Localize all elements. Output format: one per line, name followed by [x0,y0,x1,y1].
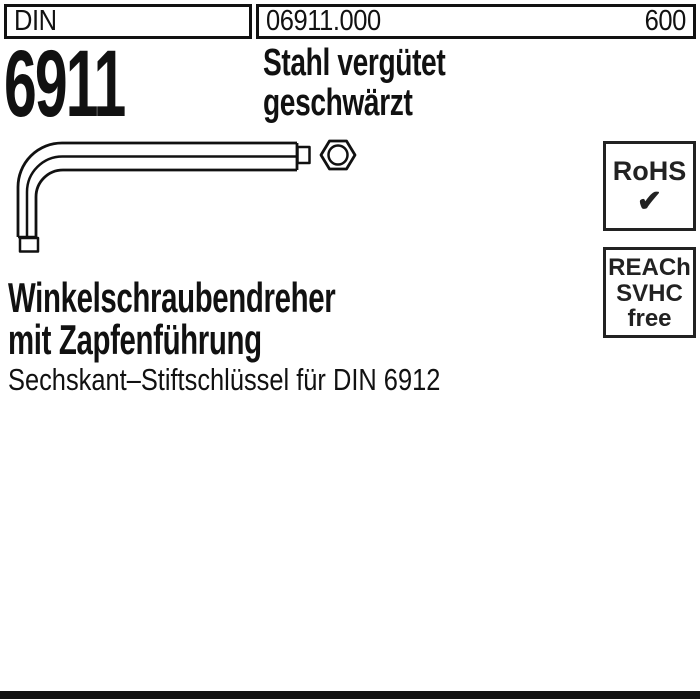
key-inner-edge [36,170,297,237]
catalog-page: DIN 06911.000 600 6911 Stahl vergütet ge… [0,0,700,700]
key-middle-edge [27,157,297,238]
reach-badge: REACh SVHC free [603,247,696,338]
key-pilot-foot [20,238,38,252]
material-description: Stahl vergütet geschwärzt [263,43,445,123]
product-title-line-1: Winkelschraubendreher [8,277,335,319]
article-number: 06911.000 [266,5,381,38]
product-title: Winkelschraubendreher mit Zapfenführung [8,277,335,361]
rohs-label: RoHS [613,158,687,185]
page-number: 600 [645,5,686,38]
din-number: 6911 [4,46,124,122]
material-line-1: Stahl vergütet [263,43,445,83]
product-title-line-2: mit Zapfenführung [8,319,335,361]
reach-line-2: SVHC [616,281,683,307]
reach-line-1: REACh [608,255,691,281]
product-subtitle: Sechskant–Stiftschlüssel für DIN 6912 [8,363,440,397]
material-line-2: geschwärzt [263,83,445,123]
reach-line-3: free [627,306,671,332]
rohs-badge: RoHS ✔ [603,141,696,231]
header-article-box: 06911.000 600 [256,4,696,39]
checkmark-icon: ✔ [637,188,662,215]
hex-key-drawing [0,128,362,258]
bottom-divider-bar [0,691,700,699]
key-pilot-tip [298,147,310,163]
